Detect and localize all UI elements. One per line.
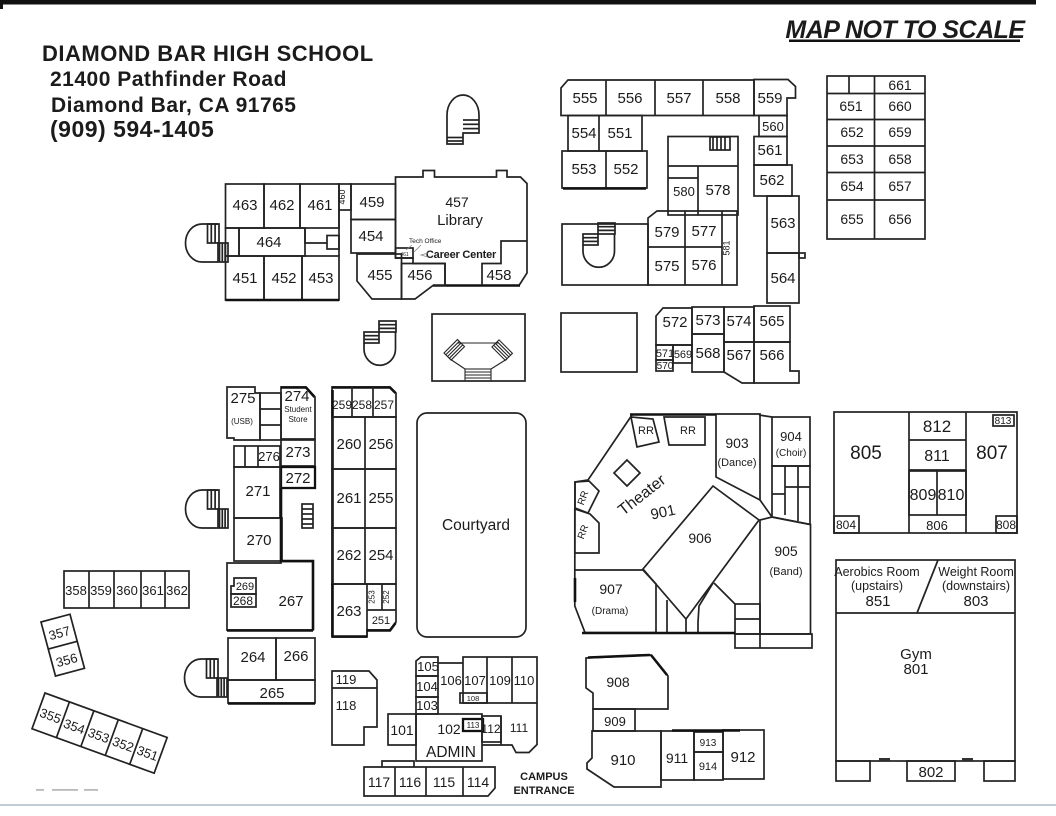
svg-text:654: 654: [840, 178, 864, 194]
svg-text:119: 119: [336, 672, 357, 687]
svg-text:811: 811: [924, 448, 950, 465]
svg-text:251: 251: [372, 615, 390, 627]
svg-text:460: 460: [337, 189, 347, 204]
svg-text:(downstairs): (downstairs): [942, 579, 1010, 593]
svg-text:276: 276: [258, 449, 280, 464]
svg-text:658: 658: [888, 151, 912, 167]
svg-text:110: 110: [514, 673, 535, 688]
svg-text:265: 265: [259, 685, 284, 702]
svg-text:808: 808: [996, 518, 1016, 532]
svg-text:452: 452: [271, 270, 296, 287]
svg-text:113: 113: [467, 721, 480, 730]
svg-text:913: 913: [700, 738, 717, 749]
svg-text:Tech Office: Tech Office: [409, 238, 442, 245]
svg-text:661: 661: [888, 77, 912, 93]
svg-text:462: 462: [269, 197, 294, 214]
svg-text:Courtyard: Courtyard: [442, 517, 510, 534]
svg-text:813: 813: [995, 416, 1012, 427]
svg-text:263: 263: [336, 603, 361, 620]
svg-text:Weight Room: Weight Room: [938, 565, 1014, 579]
svg-text:Library: Library: [437, 212, 483, 229]
svg-text:905: 905: [774, 543, 798, 559]
svg-text:572: 572: [662, 314, 687, 331]
svg-text:(909) 594-1405: (909) 594-1405: [50, 116, 214, 142]
svg-text:908: 908: [606, 674, 630, 690]
svg-text:571: 571: [656, 348, 674, 360]
svg-text:558: 558: [715, 90, 740, 107]
svg-text:563: 563: [770, 215, 795, 232]
svg-text:103: 103: [416, 698, 438, 713]
svg-text:ADMIN: ADMIN: [426, 744, 476, 761]
svg-text:270: 270: [246, 532, 271, 549]
svg-text:112: 112: [481, 722, 500, 736]
svg-text:914: 914: [699, 761, 717, 773]
svg-text:262: 262: [336, 547, 361, 564]
svg-text:Aerobics Room: Aerobics Room: [834, 565, 919, 579]
svg-text:912: 912: [730, 749, 755, 766]
svg-text:573: 573: [695, 312, 720, 329]
svg-text:453: 453: [308, 270, 333, 287]
svg-text:570: 570: [657, 361, 674, 372]
svg-text:(upstairs): (upstairs): [851, 579, 903, 593]
svg-text:652: 652: [840, 124, 864, 140]
svg-text:267: 267: [278, 593, 303, 610]
svg-text:556: 556: [617, 90, 642, 107]
svg-text:551: 551: [607, 125, 632, 142]
svg-text:907: 907: [599, 581, 623, 597]
svg-text:259: 259: [332, 398, 352, 412]
svg-text:108: 108: [467, 694, 480, 703]
svg-text:569: 569: [674, 349, 692, 361]
svg-text:273: 273: [285, 444, 310, 461]
svg-text:21400 Pathfinder Road: 21400 Pathfinder Road: [50, 68, 287, 91]
svg-text:458: 458: [486, 267, 511, 284]
svg-text:274: 274: [284, 388, 309, 405]
svg-text:903: 903: [725, 435, 749, 451]
svg-text:(Dance): (Dance): [717, 457, 756, 469]
svg-text:256: 256: [368, 436, 393, 453]
svg-text:275: 275: [230, 390, 255, 407]
svg-text:803: 803: [963, 593, 988, 610]
svg-text:562: 562: [759, 172, 784, 189]
svg-text:906: 906: [688, 530, 712, 546]
svg-text:Career Center: Career Center: [426, 249, 497, 261]
svg-text:451: 451: [232, 270, 257, 287]
svg-text:(Band): (Band): [769, 566, 802, 578]
svg-text:116: 116: [399, 774, 422, 790]
svg-text:Store: Store: [288, 415, 308, 424]
svg-text:264: 264: [240, 649, 265, 666]
svg-text:252: 252: [382, 590, 391, 604]
svg-text:118: 118: [336, 698, 357, 713]
svg-text:271: 271: [245, 483, 270, 500]
svg-text:258: 258: [352, 398, 372, 412]
svg-text:557: 557: [666, 90, 691, 107]
svg-text:260: 260: [336, 436, 361, 453]
svg-text:117: 117: [368, 774, 391, 790]
svg-text:657: 657: [888, 178, 912, 194]
svg-text:114: 114: [467, 774, 490, 790]
svg-text:272: 272: [285, 470, 310, 487]
svg-text:659: 659: [888, 124, 912, 140]
svg-text:254: 254: [368, 547, 393, 564]
svg-text:651: 651: [839, 98, 863, 114]
svg-text:ENTRANCE: ENTRANCE: [513, 785, 574, 797]
svg-text:909: 909: [604, 714, 626, 729]
svg-text:269: 269: [236, 581, 254, 593]
svg-text:561: 561: [757, 142, 782, 159]
svg-text:804: 804: [836, 518, 856, 532]
svg-text:555: 555: [572, 90, 597, 107]
svg-text:362: 362: [166, 583, 188, 598]
svg-text:255: 255: [368, 490, 393, 507]
svg-text:554: 554: [571, 125, 596, 142]
svg-text:464: 464: [256, 234, 281, 251]
svg-text:580: 580: [673, 184, 695, 199]
svg-text:104: 104: [416, 679, 438, 694]
svg-text:579: 579: [654, 224, 679, 241]
svg-text:809: 809: [910, 487, 937, 504]
svg-text:577: 577: [691, 223, 716, 240]
svg-text:553: 553: [571, 161, 596, 178]
svg-text:552: 552: [613, 161, 638, 178]
svg-text:812: 812: [923, 417, 951, 436]
svg-text:268: 268: [233, 594, 253, 608]
svg-text:851: 851: [865, 593, 890, 610]
svg-text:(Choir): (Choir): [776, 448, 807, 459]
svg-text:105: 105: [417, 659, 439, 674]
svg-text:DIAMOND BAR HIGH SCHOOL: DIAMOND BAR HIGH SCHOOL: [42, 41, 374, 66]
svg-text:359: 359: [90, 583, 112, 598]
svg-text:565: 565: [759, 313, 784, 330]
svg-text:581: 581: [722, 240, 732, 255]
svg-text:575: 575: [654, 258, 679, 275]
svg-text:115: 115: [433, 774, 456, 790]
svg-text:560: 560: [762, 119, 784, 134]
svg-text:109: 109: [489, 673, 511, 688]
svg-text:266: 266: [283, 648, 308, 665]
svg-text:807: 807: [976, 443, 1008, 464]
svg-text:360: 360: [116, 583, 138, 598]
svg-text:911: 911: [666, 750, 689, 766]
svg-text:805: 805: [850, 443, 882, 464]
svg-text:261: 261: [336, 490, 361, 507]
svg-text:358: 358: [65, 583, 87, 598]
svg-text:567: 567: [726, 347, 751, 364]
svg-text:653: 653: [840, 151, 864, 167]
svg-text:801: 801: [903, 661, 928, 678]
svg-text:564: 564: [770, 270, 795, 287]
svg-text:361: 361: [142, 583, 164, 598]
svg-text:CAMPUS: CAMPUS: [520, 771, 568, 783]
svg-text:463: 463: [232, 197, 257, 214]
svg-text:Diamond Bar, CA 91765: Diamond Bar, CA 91765: [51, 94, 296, 117]
svg-text:107: 107: [464, 673, 486, 688]
svg-text:Student: Student: [284, 405, 312, 414]
svg-text:106: 106: [440, 673, 462, 688]
svg-text:576: 576: [691, 257, 716, 274]
svg-text:RR: RR: [638, 425, 654, 437]
svg-text:(USB): (USB): [231, 417, 253, 426]
svg-text:566: 566: [759, 347, 784, 364]
svg-text:RR: RR: [680, 425, 696, 437]
svg-text:660: 660: [888, 98, 912, 114]
svg-text:810: 810: [938, 487, 965, 504]
svg-text:568: 568: [695, 345, 720, 362]
svg-text:655: 655: [840, 211, 864, 227]
svg-text:656: 656: [888, 211, 912, 227]
svg-text:574: 574: [726, 313, 751, 330]
svg-text:578: 578: [705, 182, 730, 199]
svg-text:457: 457: [445, 194, 469, 210]
svg-text:559: 559: [757, 90, 782, 107]
svg-text:456: 456: [407, 267, 432, 284]
svg-text:459: 459: [359, 194, 384, 211]
svg-text:455: 455: [367, 267, 392, 284]
svg-text:454: 454: [358, 228, 383, 245]
svg-text:257: 257: [374, 398, 394, 412]
svg-text:461: 461: [307, 197, 332, 214]
svg-text:802: 802: [918, 764, 943, 781]
svg-text:(Drama): (Drama): [592, 606, 629, 617]
svg-text:806: 806: [926, 518, 948, 533]
svg-text:253: 253: [368, 590, 377, 604]
svg-text:101: 101: [390, 722, 414, 738]
svg-text:910: 910: [610, 752, 635, 769]
svg-text:111: 111: [510, 721, 529, 735]
svg-text:102: 102: [437, 721, 461, 737]
svg-text:904: 904: [780, 429, 802, 444]
